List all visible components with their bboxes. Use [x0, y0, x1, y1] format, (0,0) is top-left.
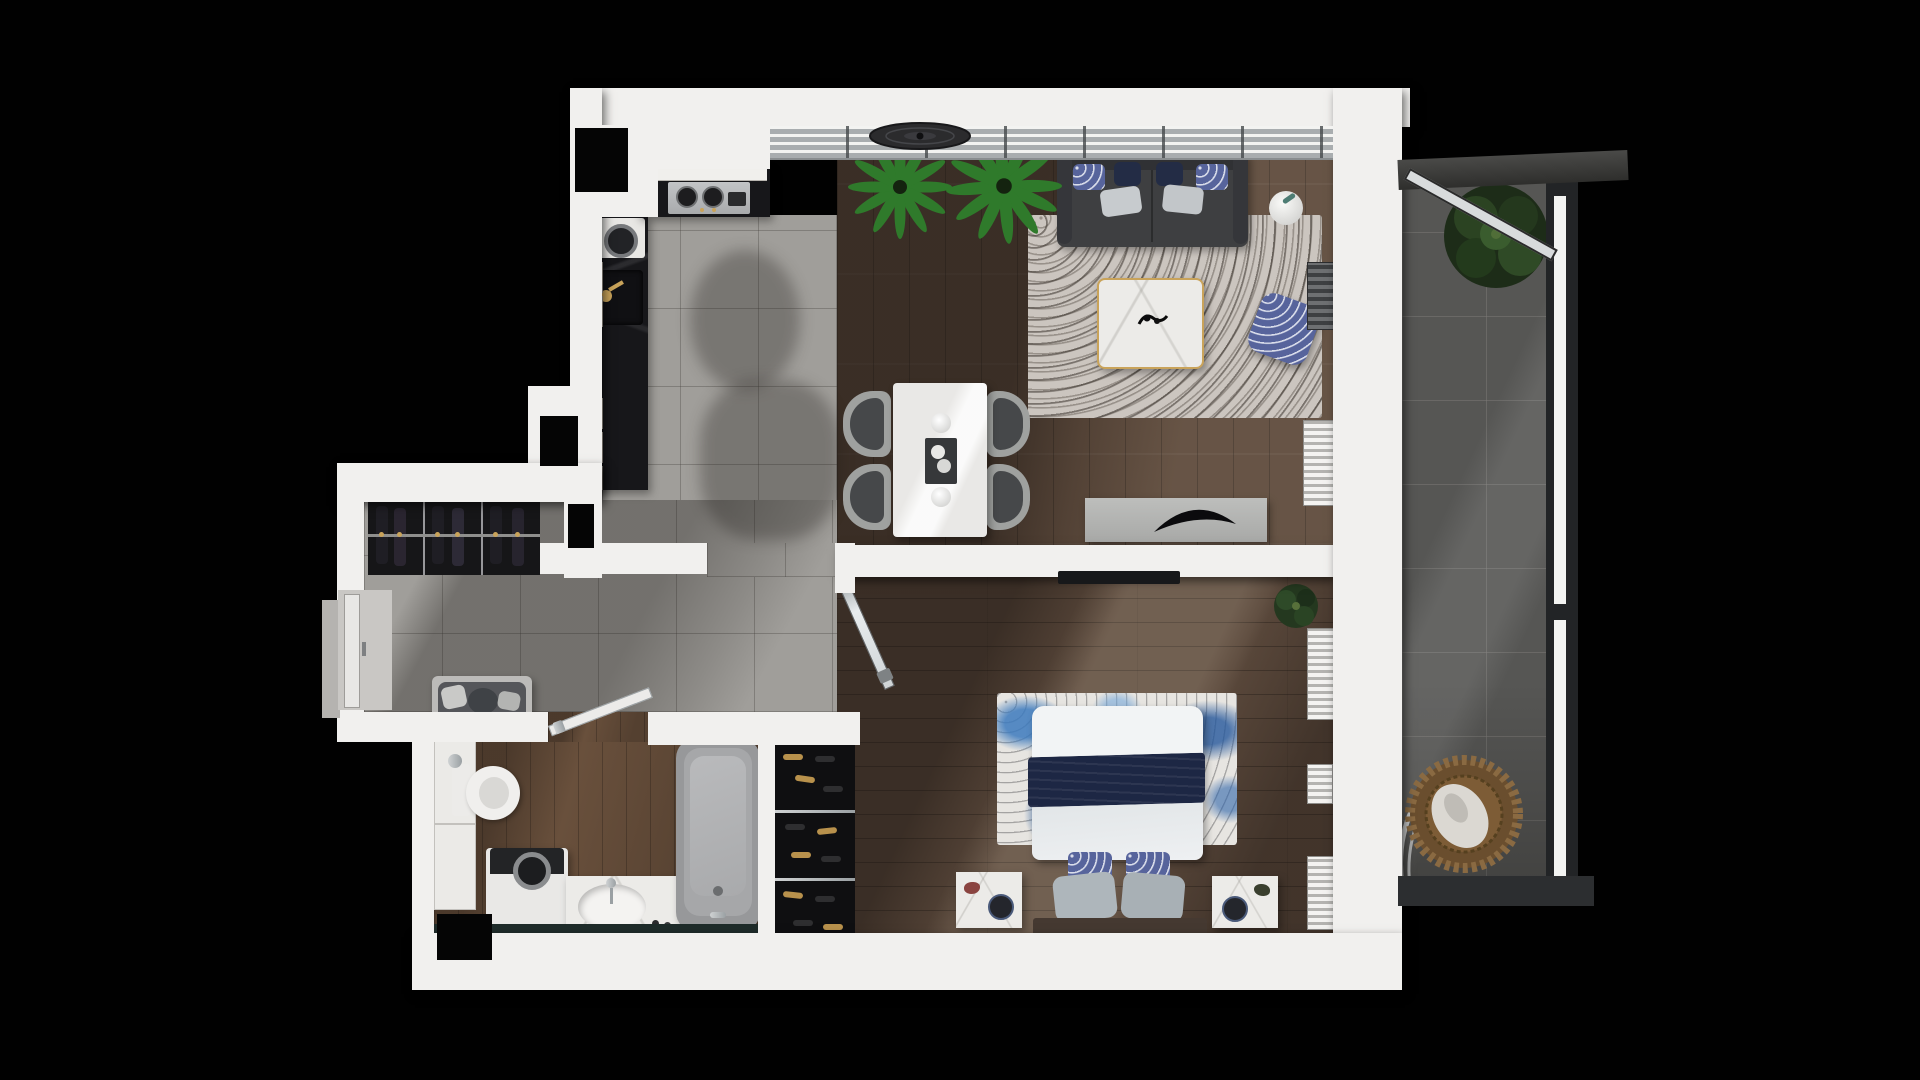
bed-pillow-gray: [1120, 871, 1186, 922]
pillow-navy: [1114, 162, 1141, 186]
bedroom-plant-icon: [1266, 578, 1326, 634]
nightstand: [1212, 876, 1278, 928]
linen-shelf-stack: [1307, 764, 1333, 804]
curtain-stack-light: [1303, 420, 1335, 506]
bed-pillow-gray: [1052, 871, 1118, 923]
toilet-bowl: [466, 766, 520, 820]
wall-niche-bottom: [437, 914, 492, 960]
linen-shelf-stack: [1307, 628, 1335, 720]
flush-button-icon: [448, 754, 462, 768]
wall-right: [1333, 88, 1402, 940]
garment: [452, 508, 464, 566]
dining-chair: [843, 391, 891, 457]
plate-icon: [931, 445, 945, 459]
flowers-icon: [964, 882, 980, 894]
wall-top: [570, 88, 1410, 127]
drain-icon: [713, 886, 723, 896]
pillow-gray: [1099, 185, 1142, 217]
washer-drum-icon: [513, 852, 551, 890]
hanging-egg-chair-icon: [1386, 738, 1534, 894]
wall-niche-shaft: [575, 128, 628, 192]
table-decor-icon: [1135, 308, 1171, 332]
floorplan-render: [0, 0, 1920, 1080]
sofa-seam: [1151, 170, 1153, 242]
bed-navy-throw: [1028, 753, 1205, 808]
bench-pillow: [497, 690, 522, 712]
chair-seat: [850, 398, 884, 450]
wall-hall-bottom-right: [648, 712, 860, 745]
nightstand: [956, 872, 1022, 928]
faucet-stem: [610, 888, 613, 904]
burner-icon: [676, 186, 698, 208]
curtain-stack-dark: [1307, 262, 1335, 330]
pillow-blue-patterned: [1196, 164, 1228, 190]
pillow-gray: [1162, 184, 1205, 215]
chair-seat: [993, 398, 1023, 450]
bathtub-basin: [690, 756, 746, 896]
hob-controls: [728, 192, 746, 206]
ceiling-fan-icon: [866, 116, 974, 156]
tub-faucet-icon: [710, 912, 726, 918]
dining-table: [893, 383, 987, 537]
pillow-navy: [1156, 162, 1183, 186]
console-sculpture-icon: [1148, 500, 1240, 540]
decor-plate-icon: [988, 894, 1014, 920]
flowers-icon: [1254, 884, 1270, 896]
cooktop-cabinet-row: [640, 167, 767, 181]
entry-door: [344, 594, 360, 708]
wall-niche-left: [540, 416, 578, 466]
wall-hall-top: [337, 463, 602, 502]
hall-wardrobe: [368, 498, 540, 575]
bathtub: [676, 738, 760, 932]
wall-bath-left: [412, 742, 434, 933]
tv: [1058, 571, 1180, 584]
gold-knob-icon: [712, 208, 716, 212]
railing-glass: [1554, 620, 1566, 878]
washing-machine: [486, 848, 568, 934]
cup-icon: [931, 413, 951, 433]
chair-shadow: [690, 250, 800, 390]
plate-icon: [937, 459, 951, 473]
balcony-rail-bottom: [1398, 876, 1594, 906]
wall-bottom: [412, 933, 1402, 990]
door-jamb: [835, 543, 855, 593]
railing-glass: [1554, 196, 1566, 604]
garment: [394, 508, 406, 566]
shelf-edge: [775, 878, 855, 881]
decor-plate-icon: [1222, 896, 1248, 922]
sofa-armrest: [1233, 154, 1248, 244]
wall-bath-bedroom: [758, 742, 775, 933]
cup-icon: [931, 487, 951, 507]
cabinet-split: [435, 823, 475, 825]
window-mullions: [770, 126, 1333, 158]
balcony-rail-right: [1546, 168, 1578, 905]
pillow-blue-patterned: [1073, 164, 1105, 190]
entry-door-frame: [338, 590, 392, 710]
bench-pillow-dark: [468, 688, 498, 714]
shoe-closet: [775, 742, 855, 948]
chair-seat: [993, 471, 1023, 523]
shelf-edge: [775, 810, 855, 813]
wall-kitchen-top: [640, 125, 770, 169]
wall-hall-bottom-left: [337, 712, 548, 742]
garment: [512, 508, 524, 566]
door-handle-icon: [362, 642, 366, 656]
appliance-door-icon: [604, 224, 638, 258]
burner-icon: [702, 186, 724, 208]
gold-knob-icon: [700, 208, 704, 212]
wall-mid-left: [540, 543, 707, 574]
dining-chair: [843, 464, 891, 530]
chair-seat: [850, 471, 884, 523]
toilet-seat: [479, 777, 509, 809]
wall-niche-hall: [568, 504, 594, 548]
vanity-faucet-icon: [606, 878, 616, 888]
linen-shelf-stack: [1307, 856, 1335, 930]
sofa: [1057, 150, 1248, 247]
